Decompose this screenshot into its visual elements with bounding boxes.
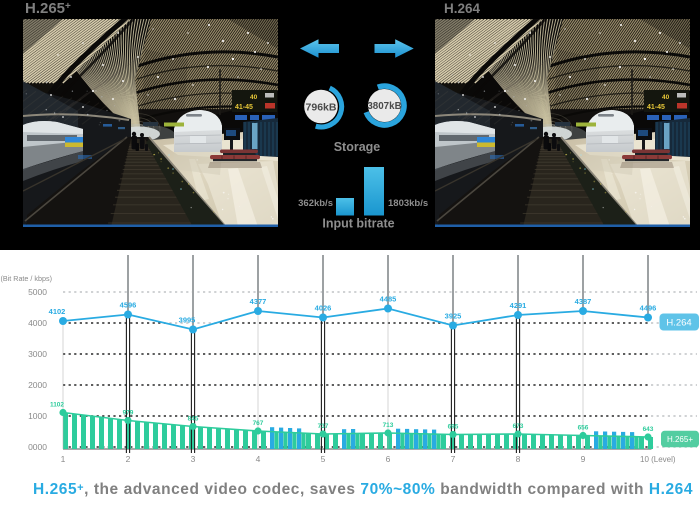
svg-text:656: 656	[578, 425, 589, 432]
svg-text:4102: 4102	[49, 307, 66, 316]
svg-text:5000: 5000	[28, 287, 47, 297]
svg-text:1000: 1000	[28, 411, 47, 421]
svg-text:4000: 4000	[28, 318, 47, 328]
svg-text:3: 3	[191, 454, 196, 464]
svg-text:6: 6	[386, 454, 391, 464]
svg-text:1102: 1102	[50, 402, 64, 409]
svg-text:979: 979	[123, 410, 134, 417]
svg-text:643: 643	[643, 426, 654, 433]
svg-text:362kb/s: 362kb/s	[298, 198, 333, 209]
svg-text:3925: 3925	[445, 312, 462, 321]
svg-text:0000: 0000	[28, 442, 47, 452]
svg-text:5: 5	[321, 454, 326, 464]
svg-text:1803kb/s: 1803kb/s	[388, 198, 428, 209]
svg-text:Input bitrate: Input bitrate	[322, 217, 394, 231]
svg-text:7: 7	[451, 454, 456, 464]
svg-text:(Bit Rate / kbps): (Bit Rate / kbps)	[0, 274, 52, 283]
svg-text:4026: 4026	[315, 304, 332, 313]
svg-text:Storage: Storage	[334, 140, 381, 154]
svg-text:4291: 4291	[510, 301, 527, 310]
svg-text:845: 845	[188, 416, 199, 423]
svg-text:2: 2	[126, 454, 131, 464]
svg-text:4387: 4387	[575, 297, 592, 306]
svg-text:767: 767	[253, 420, 264, 427]
svg-text:9: 9	[581, 454, 586, 464]
svg-text:4: 4	[256, 454, 261, 464]
svg-text:8: 8	[516, 454, 521, 464]
svg-text:4596: 4596	[120, 301, 137, 310]
svg-text:673: 673	[513, 423, 524, 430]
svg-text:3807kB: 3807kB	[367, 101, 401, 112]
svg-text:796kB: 796kB	[306, 102, 337, 114]
svg-text:713: 713	[383, 422, 394, 429]
svg-text:4377: 4377	[250, 297, 267, 306]
svg-text:737: 737	[318, 423, 329, 430]
svg-text:695: 695	[448, 424, 459, 431]
svg-text:3000: 3000	[28, 349, 47, 359]
svg-text:10 (Level): 10 (Level)	[640, 455, 676, 464]
svg-text:H.265+: H.265+	[667, 435, 693, 444]
svg-text:3995: 3995	[179, 316, 196, 325]
svg-text:2000: 2000	[28, 380, 47, 390]
svg-text:H.264: H.264	[666, 318, 691, 329]
svg-text:4485: 4485	[380, 295, 397, 304]
svg-text:4496: 4496	[640, 304, 657, 313]
svg-text:1: 1	[61, 454, 66, 464]
